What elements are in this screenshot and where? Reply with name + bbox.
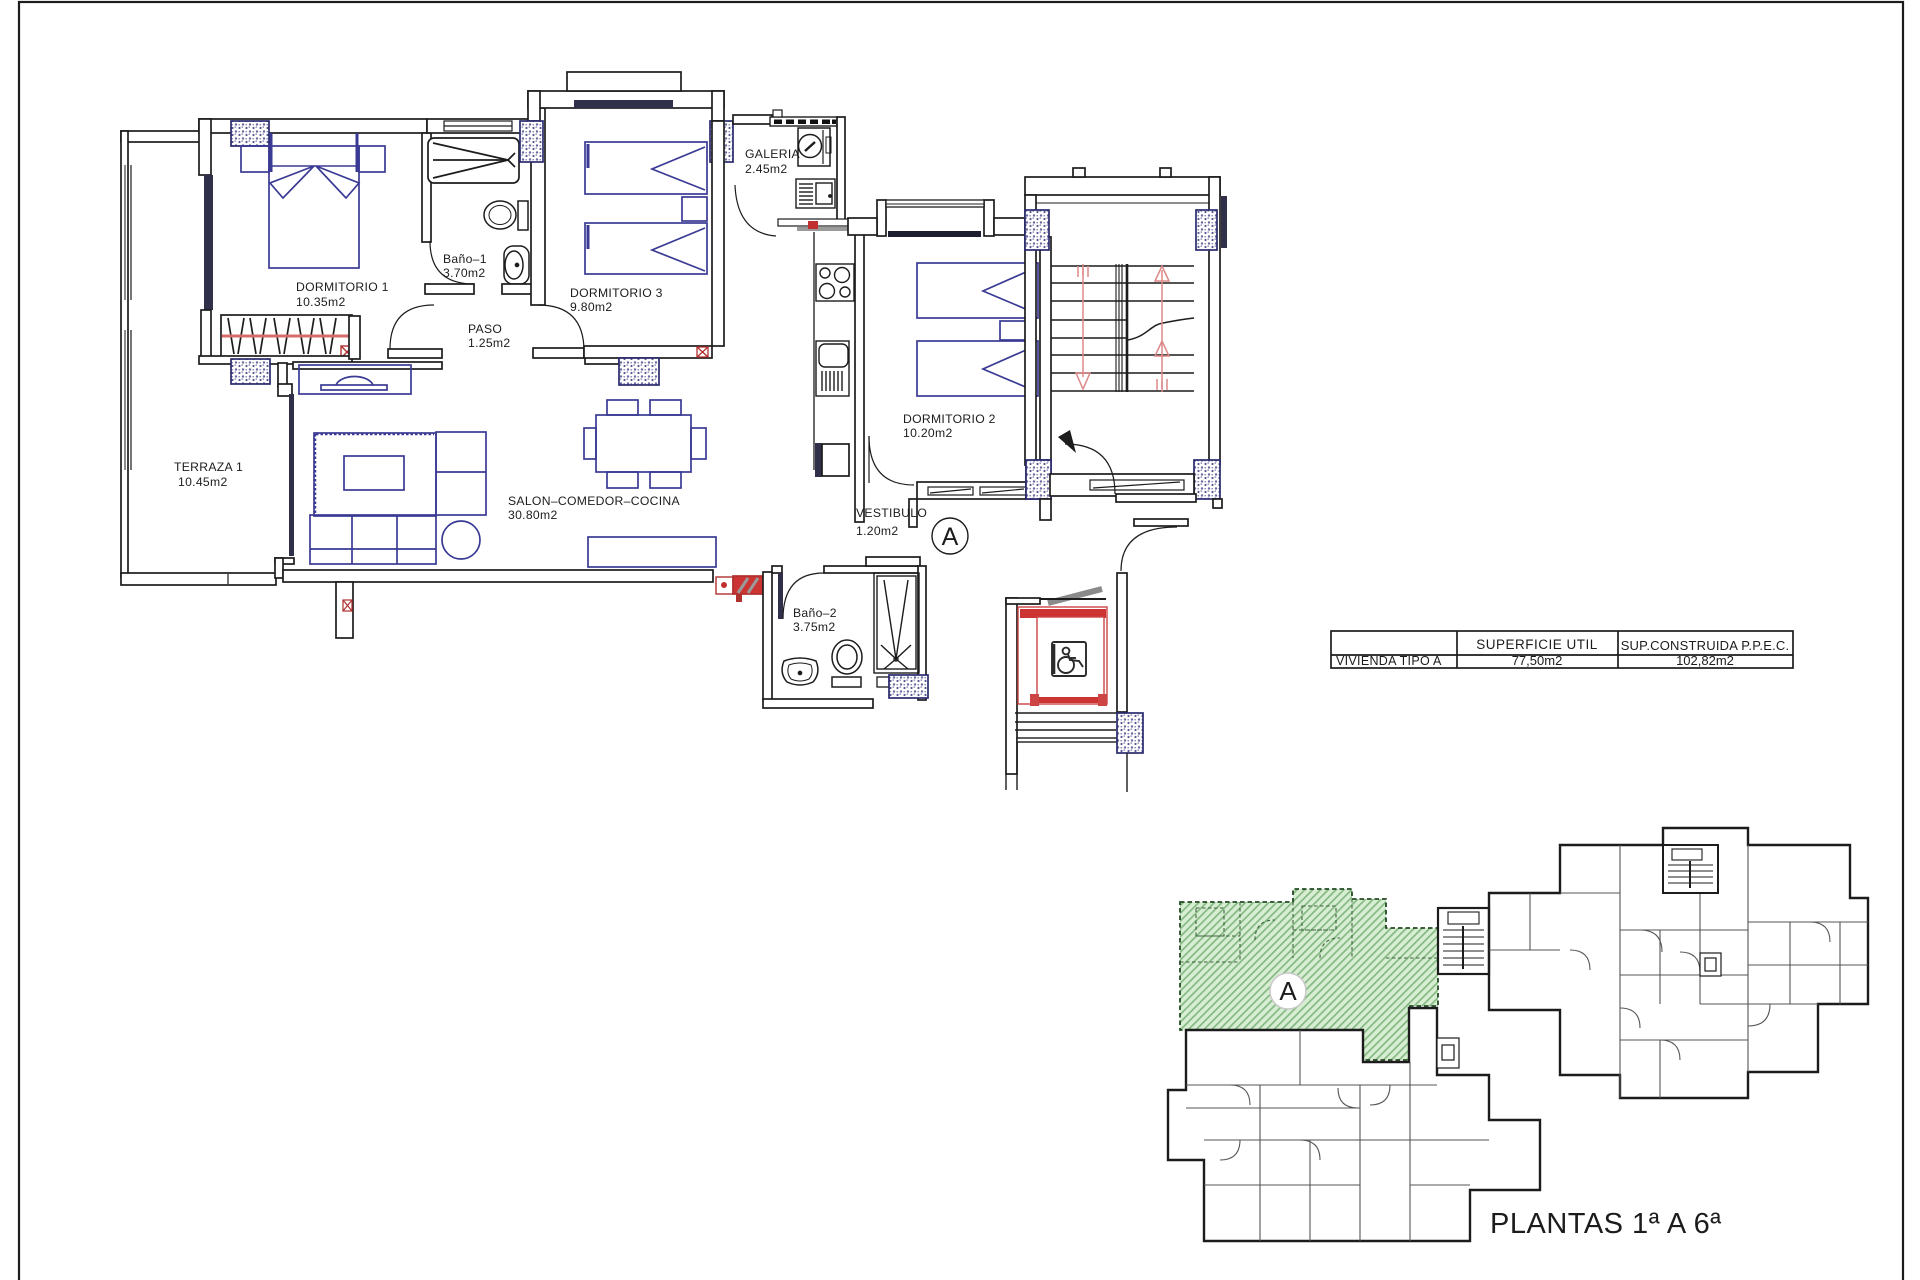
svg-text:SUP.CONSTRUIDA P.P.E.C.: SUP.CONSTRUIDA P.P.E.C. [1621, 638, 1790, 653]
svg-text:1.20m2: 1.20m2 [856, 524, 898, 538]
svg-text:DORMITORIO 1: DORMITORIO 1 [296, 280, 389, 294]
svg-text:PLANTAS 1ª A 6ª: PLANTAS 1ª A 6ª [1490, 1208, 1722, 1240]
svg-text:30.80m2: 30.80m2 [508, 508, 558, 522]
svg-text:DORMITORIO 3: DORMITORIO 3 [570, 286, 663, 300]
svg-text:10.20m2: 10.20m2 [903, 426, 953, 440]
svg-text:PASO: PASO [468, 322, 502, 336]
svg-text:77,50m2: 77,50m2 [1512, 653, 1563, 668]
svg-text:SALON–COMEDOR–COCINA: SALON–COMEDOR–COCINA [508, 494, 680, 508]
svg-text:VIVIENDA TIPO A: VIVIENDA TIPO A [1336, 654, 1442, 668]
svg-text:3.75m2: 3.75m2 [793, 620, 835, 634]
svg-text:10.45m2: 10.45m2 [178, 475, 228, 489]
svg-text:TERRAZA 1: TERRAZA 1 [174, 460, 243, 474]
svg-text:Baño–2: Baño–2 [793, 606, 837, 620]
svg-text:SUPERFICIE UTIL: SUPERFICIE UTIL [1476, 637, 1598, 652]
svg-text:2.45m2: 2.45m2 [745, 162, 787, 176]
svg-text:VESTIBULO: VESTIBULO [856, 506, 927, 520]
svg-text:DORMITORIO 2: DORMITORIO 2 [903, 412, 996, 426]
svg-text:GALERIA: GALERIA [745, 147, 801, 161]
svg-text:10.35m2: 10.35m2 [296, 295, 346, 309]
svg-text:3.70m2: 3.70m2 [443, 266, 485, 280]
svg-text:102,82m2: 102,82m2 [1676, 653, 1734, 668]
svg-text:Baño–1: Baño–1 [443, 252, 487, 266]
svg-text:1.25m2: 1.25m2 [468, 336, 510, 350]
svg-text:A: A [1279, 976, 1297, 1006]
svg-text:9.80m2: 9.80m2 [570, 300, 612, 314]
svg-text:A: A [942, 523, 959, 551]
